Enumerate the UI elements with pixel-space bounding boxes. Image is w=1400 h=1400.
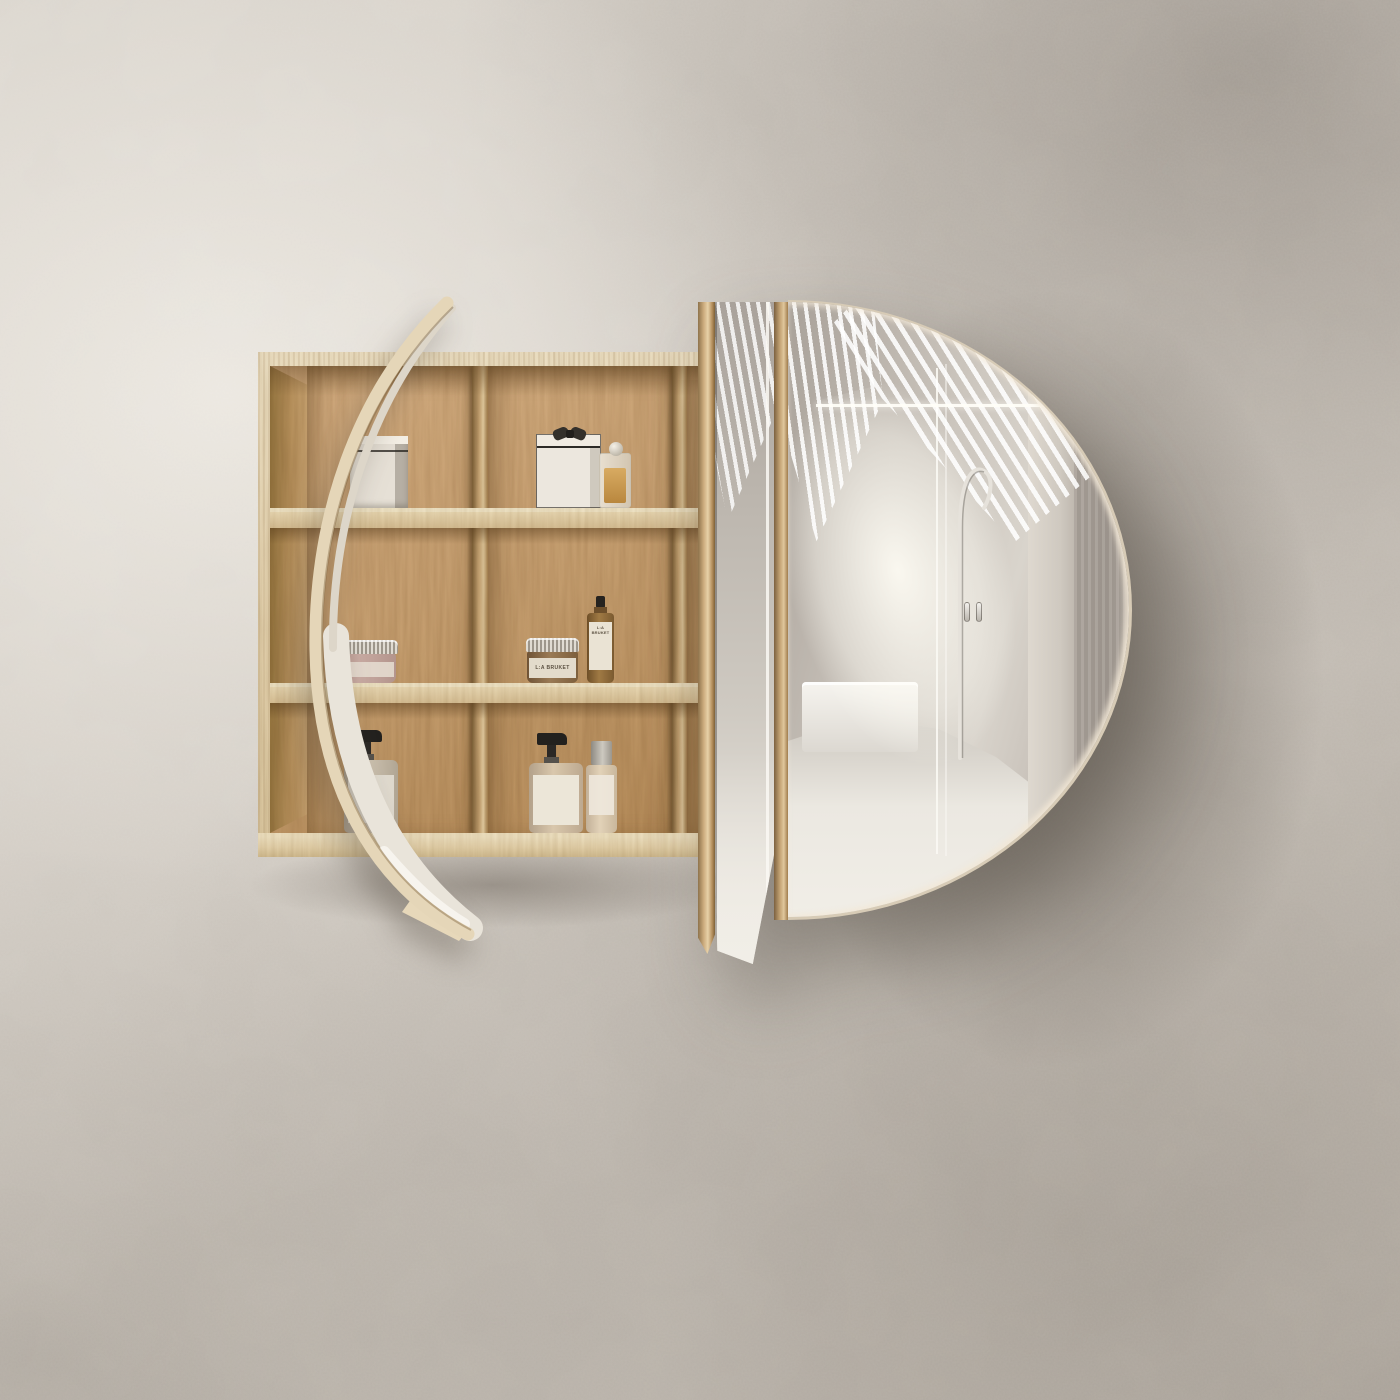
bottle-label bbox=[348, 775, 394, 823]
soap-pump-bottle bbox=[344, 730, 398, 833]
labruket-jar: L:A BRUKET bbox=[526, 638, 579, 683]
sliding-mirror-door bbox=[698, 300, 1148, 966]
perfume-stopper bbox=[609, 442, 623, 456]
perfume-bottle bbox=[599, 453, 631, 508]
jar-label: L:A BRUKET bbox=[529, 658, 576, 678]
cabinet-left-side-wall bbox=[270, 366, 307, 833]
bow-knot bbox=[566, 430, 574, 438]
spray-cap bbox=[591, 741, 612, 765]
jar-ribbed-lid bbox=[526, 638, 579, 652]
ribbon-bow bbox=[553, 422, 587, 448]
door-oak-divider bbox=[774, 302, 788, 920]
box-seam bbox=[350, 450, 408, 452]
pump-stem bbox=[362, 741, 371, 755]
perfume-liquid bbox=[604, 468, 626, 503]
bottle-label bbox=[589, 775, 614, 815]
jar-label bbox=[331, 662, 394, 677]
pump-head bbox=[537, 733, 567, 745]
pump-head bbox=[352, 730, 382, 742]
bottle-label bbox=[533, 775, 579, 825]
vertical-divider-1 bbox=[472, 366, 488, 833]
spray-bottle bbox=[586, 741, 617, 833]
labruket-bottle: L:A BRUKET bbox=[587, 596, 614, 683]
lotion-pump-bottle bbox=[529, 733, 583, 833]
mirror-door-oak-rim bbox=[788, 300, 1132, 920]
cream-jar bbox=[327, 640, 398, 683]
panel-edge-shadow bbox=[715, 302, 717, 964]
door-oak-stile bbox=[698, 302, 715, 954]
mirror-panel-left bbox=[715, 302, 774, 964]
metal-keepsake-box bbox=[350, 436, 408, 508]
reflection-glass-edge bbox=[766, 302, 769, 964]
bottle-label: L:A BRUKET bbox=[589, 622, 612, 670]
mirror-door-main bbox=[788, 302, 1129, 917]
product-photo-scene: L:A BRUKET L:A BRUKET bbox=[0, 0, 1400, 1400]
pump-stem bbox=[547, 744, 556, 758]
jar-ribbed-lid bbox=[327, 640, 398, 654]
